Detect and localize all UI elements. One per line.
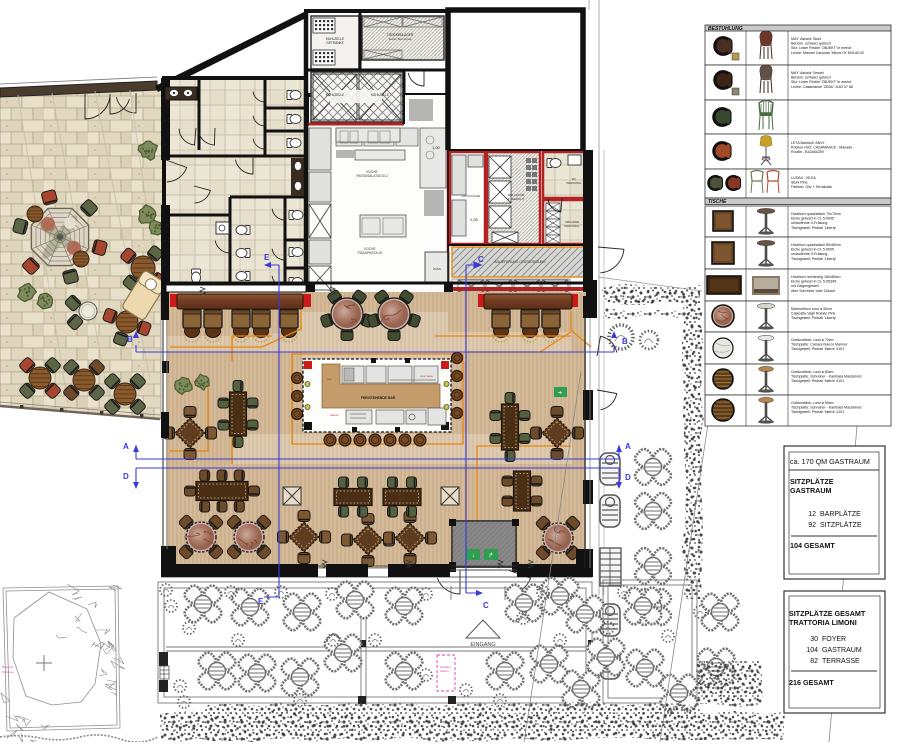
svg-text:Tischgestell: Pedrali 'bistrot: Tischgestell: Pedrali 'bistrot' 4101 (791, 379, 844, 383)
svg-text:SPÜLKÜCHE: SPÜLKÜCHE (462, 194, 480, 198)
svg-text:SITZPLÄTZE: SITZPLÄTZE (820, 521, 862, 529)
svg-text:KÜHLTHEKE: KÜHLTHEKE (420, 375, 434, 378)
svg-text:➔: ➔ (558, 390, 562, 396)
svg-text:↱: ↱ (488, 552, 493, 559)
svg-text:Tischgestell: Pedrali 'Liberty: Tischgestell: Pedrali 'Liberty' (791, 226, 836, 230)
svg-text:MAY 'Astoria' Sessel: MAY 'Astoria' Sessel (791, 71, 824, 75)
svg-text:PIZZA/PASTA 4G: PIZZA/PASTA 4G (358, 251, 383, 255)
svg-text:82: 82 (810, 658, 818, 665)
svg-text:Sitz: Leder Fiedler 'OBJEKT' i: Sitz: Leder Fiedler 'OBJEKT' in merlot (791, 46, 851, 50)
svg-text:Rouille - B42484259: Rouille - B42484259 (791, 150, 824, 154)
svg-text:Holztisch quadratisch 70x70cm: Holztisch quadratisch 70x70cm (791, 212, 841, 216)
svg-text:Tischgestell: Pedrali 'bistrot: Tischgestell: Pedrali 'bistrot' 4101 (791, 347, 844, 351)
svg-text:Rücken+Sitz: CASAMANCE - Manad: Rücken+Sitz: CASAMANCE - Manade - (791, 146, 855, 150)
svg-text:Tischplatte: Schreiner - Kamba: Tischplatte: Schreiner - Kambala Massivh… (791, 406, 862, 410)
svg-text:Outdoortisch, rund ø 70cm: Outdoortisch, rund ø 70cm (791, 338, 834, 342)
svg-text:PASTA/SALAT/DOLCI: PASTA/SALAT/DOLCI (356, 174, 387, 178)
svg-text:über Schreiner oder Zukauf: über Schreiner oder Zukauf (791, 289, 835, 293)
svg-text:PASS: PASS (433, 267, 441, 271)
svg-text:GASTRAUM: GASTRAUM (790, 486, 832, 495)
svg-text:Tischplatte: Carrara bianco Ma: Tischplatte: Carrara bianco Marmor (791, 343, 848, 347)
svg-text:SITZPLÄTZE GESAMT: SITZPLÄTZE GESAMT (789, 609, 866, 618)
svg-text:TRATTORIA LIMONI: TRATTORIA LIMONI (789, 618, 857, 627)
svg-text:PERSONAL: PERSONAL (564, 224, 580, 228)
svg-text:Tischplatte: Schreiner - Kamba: Tischplatte: Schreiner - Kambala Massivh… (791, 375, 862, 379)
svg-text:Holztisch quadratisch 80x80cm: Holztisch quadratisch 80x80cm (791, 243, 841, 247)
svg-text:FOYER: FOYER (822, 636, 846, 643)
svg-text:E: E (264, 253, 270, 262)
svg-text:D: D (625, 473, 631, 482)
svg-text:ANLIEFERUNG / ENTSORGUNG: ANLIEFERUNG / ENTSORGUNG (494, 260, 546, 264)
svg-text:BAR: BAR (327, 378, 332, 381)
svg-text:GASTRAUM: GASTRAUM (822, 647, 862, 654)
svg-text:FREISTEHENDE BAR: FREISTEHENDE BAR (361, 396, 396, 400)
svg-text:mit Zargengestell: mit Zargengestell (791, 284, 819, 288)
svg-text:↓: ↓ (472, 553, 475, 559)
svg-text:KÜHLZELLE: KÜHLZELLE (326, 93, 344, 97)
svg-text:PERSONAL: PERSONAL (566, 181, 582, 185)
svg-text:LUSINI - VEGA: LUSINI - VEGA (791, 176, 816, 180)
svg-text:Terrasse: Terrasse (2, 670, 14, 674)
svg-text:Lehne: Manuel Canovas 'Minos O: Lehne: Manuel Canovas 'Minos Or' M4149-0… (791, 51, 864, 55)
svg-text:umlaufende V-Fräsung: umlaufende V-Fräsung (791, 252, 827, 256)
svg-text:104: 104 (806, 647, 818, 654)
svg-text:Beizton: schwarz gebeizt: Beizton: schwarz gebeizt (791, 42, 831, 46)
svg-text:Stuhl Pina: Stuhl Pina (791, 181, 807, 185)
svg-text:BARPLÄTZE: BARPLÄTZE (820, 510, 861, 518)
svg-text:SITZPLÄTZE: SITZPLÄTZE (790, 477, 834, 486)
svg-text:TERRASSE: TERRASSE (822, 658, 860, 665)
svg-text:GETRÄNKE: GETRÄNKE (326, 41, 344, 45)
svg-text:12: 12 (808, 511, 816, 518)
svg-text:Gastro: Gastro (440, 669, 449, 673)
svg-text:Tischgestell: Pedrali 'bistrot: Tischgestell: Pedrali 'bistrot' 4101 (791, 410, 844, 414)
svg-text:Tischgestell: Pedrali 'Liberty: Tischgestell: Pedrali 'Liberty' (791, 316, 836, 320)
svg-text:92: 92 (808, 522, 816, 529)
svg-text:MAY 'Astoria' Stuhl: MAY 'Astoria' Stuhl (791, 37, 821, 41)
svg-text:Marmortisch rund ø 90cm: Marmortisch rund ø 90cm (791, 307, 832, 311)
svg-text:Eiche gebeizt in CL 5-S5345: Eiche gebeizt in CL 5-S5345 (791, 280, 836, 284)
svg-text:E: E (258, 597, 264, 606)
svg-text:Eiche gebeizt in CL 5-5005: Eiche gebeizt in CL 5-5005 (791, 217, 834, 221)
svg-text:Farbton: Oliv + Terrakotta: Farbton: Oliv + Terrakotta (791, 185, 832, 189)
svg-text:Reserve: Reserve (2, 665, 14, 669)
svg-text:Lehne: Casamance 'ZEBU' 1163 0: Lehne: Casamance 'ZEBU' 1163 07 88 (791, 85, 853, 89)
svg-text:Tischgestell: Pedrali 'Liberty: Tischgestell: Pedrali 'Liberty' (791, 257, 836, 261)
svg-text:104 GESAMT: 104 GESAMT (790, 541, 835, 550)
svg-text:& LEERGUT: & LEERGUT (507, 197, 524, 201)
svg-text:ca. 170 QM GASTRAUM: ca. 170 QM GASTRAUM (790, 457, 870, 466)
svg-text:1,05: 1,05 (470, 217, 479, 222)
svg-text:C: C (483, 601, 489, 610)
svg-text:EINGANG: EINGANG (470, 642, 495, 648)
svg-text:KÜHLZELLE: KÜHLZELLE (371, 93, 389, 97)
svg-text:Holztisch rechteckig 160x80cm: Holztisch rechteckig 160x80cm (791, 275, 841, 279)
svg-text:umlaufende V-Fräsung: umlaufende V-Fräsung (791, 221, 827, 225)
svg-text:KAFFEE: KAFFEE (330, 414, 339, 417)
svg-text:C: C (478, 255, 484, 264)
svg-text:Beizton: schwarz gebeizt: Beizton: schwarz gebeizt (791, 76, 831, 80)
svg-text:TISCHE: TISCHE (708, 199, 727, 205)
svg-text:B: B (127, 335, 133, 344)
svg-text:LETA Barstuhl 'ANVI': LETA Barstuhl 'ANVI' (791, 141, 825, 145)
svg-text:Calacatta Vagli Rosato Pink: Calacatta Vagli Rosato Pink (791, 312, 835, 316)
svg-text:A: A (123, 442, 129, 451)
svg-text:Outdoortisch, rund ø 80cm: Outdoortisch, rund ø 80cm (791, 370, 834, 374)
svg-text:A: A (625, 442, 631, 451)
svg-text:D: D (123, 472, 129, 481)
svg-text:Outdoortisch, rund ø 90cm: Outdoortisch, rund ø 90cm (791, 401, 834, 405)
svg-text:Sitz: Leder Fiedler 'OBJEKT' i: Sitz: Leder Fiedler 'OBJEKT' in merlot (791, 80, 851, 84)
svg-text:Food / Non Food: Food / Non Food (389, 37, 412, 41)
svg-text:216 GESAMT: 216 GESAMT (789, 678, 834, 687)
svg-text:30: 30 (810, 636, 818, 643)
svg-text:Eiche gebeizt in CL 5-5005: Eiche gebeizt in CL 5-5005 (791, 248, 834, 252)
svg-text:B: B (622, 337, 628, 346)
